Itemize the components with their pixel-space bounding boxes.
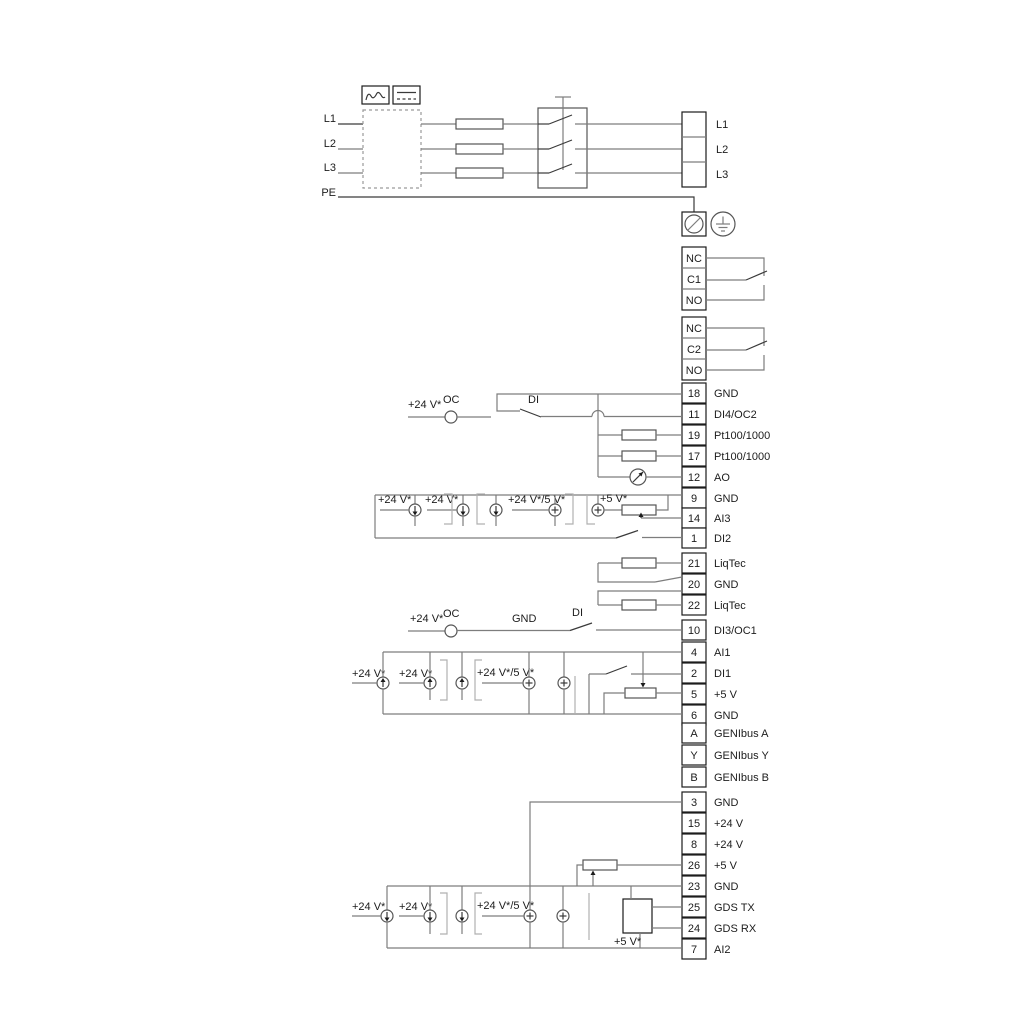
terminal-num: 10 bbox=[688, 625, 700, 637]
voltage-source-icon bbox=[482, 652, 535, 714]
relay1-nc: NC bbox=[686, 253, 702, 265]
gnd3-wire bbox=[530, 802, 682, 886]
terminal-num: 18 bbox=[688, 388, 700, 400]
gnd-wire bbox=[497, 394, 682, 411]
terminal-num: 4 bbox=[691, 647, 697, 659]
terminal-label: Pt100/1000 bbox=[714, 430, 770, 442]
switch-contact bbox=[520, 409, 541, 417]
terminal-label: GDS RX bbox=[714, 923, 757, 935]
terminal-label: LiqTec bbox=[714, 558, 746, 570]
terminal-label: +5 V bbox=[714, 689, 738, 701]
terminal-num: B bbox=[690, 772, 697, 784]
input-label-l3: L3 bbox=[324, 162, 336, 174]
terminal-label: GND bbox=[714, 493, 739, 505]
diagram-canvas: L1 L2 L3 PE bbox=[0, 0, 1024, 1024]
terminal-num: 1 bbox=[691, 533, 697, 545]
io-terminal-block: 18 11 19 17 12 9 14 1 GND DI4/OC2 Pt100/… bbox=[682, 383, 770, 959]
relay2-no: NO bbox=[686, 365, 703, 377]
relay2-block: NC C2 NO bbox=[682, 317, 767, 380]
option-bracket bbox=[477, 494, 485, 524]
relay1-no: NO bbox=[686, 295, 703, 307]
current-source-icon bbox=[352, 652, 389, 714]
terminal-label: DI1 bbox=[714, 668, 731, 680]
ai2-gds-supply-cluster: +24 V* +24 V* +24 V*/5 V* bbox=[352, 886, 682, 948]
dc-symbol-icon bbox=[393, 86, 420, 104]
terminal-num: 22 bbox=[688, 600, 700, 612]
terminal-num: 9 bbox=[691, 493, 697, 505]
terminal-num: 15 bbox=[688, 818, 700, 830]
terminal-label-l2: L2 bbox=[716, 144, 728, 156]
terminal-label: Pt100/1000 bbox=[714, 451, 770, 463]
terminal-num: A bbox=[690, 728, 698, 740]
di3-oc1-circuit: +24 V* OC GND DI bbox=[408, 607, 682, 637]
v24-5-label: +24 V*/5 V* bbox=[477, 900, 535, 912]
terminal-num: 5 bbox=[691, 689, 697, 701]
voltage-source-icon bbox=[557, 886, 569, 948]
protective-earth-symbol bbox=[711, 212, 735, 236]
terminal-label: GENIbus Y bbox=[714, 750, 769, 762]
terminal-num: 24 bbox=[688, 923, 700, 935]
resistor-liqtec-1 bbox=[622, 558, 656, 568]
option-bracket bbox=[440, 893, 447, 934]
terminal-label: +5 V bbox=[714, 860, 738, 872]
terminal-label: AO bbox=[714, 472, 730, 484]
terminal-num: 14 bbox=[688, 513, 700, 525]
option-bracket bbox=[565, 494, 573, 524]
input-label-l2: L2 bbox=[324, 138, 336, 150]
terminal-label: GENIbus B bbox=[714, 772, 769, 784]
resistor-pt100-1 bbox=[622, 430, 656, 440]
gds-sensor-box bbox=[623, 899, 652, 933]
terminal-num: 21 bbox=[688, 558, 700, 570]
contactor bbox=[538, 97, 587, 188]
terminal-label: LiqTec bbox=[714, 600, 746, 612]
terminal-label: GDS TX bbox=[714, 902, 755, 914]
filter-box bbox=[363, 110, 421, 188]
resistor-pt100-2 bbox=[622, 451, 656, 461]
power-input-section: L1 L2 L3 PE bbox=[321, 86, 735, 236]
current-source-icon bbox=[490, 495, 502, 526]
di-label: DI bbox=[528, 394, 539, 406]
terminal-label: AI3 bbox=[714, 513, 731, 525]
liqtec-circuit bbox=[598, 558, 682, 610]
supply-and-feedback-circuit bbox=[387, 802, 682, 886]
terminal-num: 6 bbox=[691, 710, 697, 722]
terminal-num: 25 bbox=[688, 902, 700, 914]
input-label-l1: L1 bbox=[324, 113, 336, 125]
terminal-label-l3: L3 bbox=[716, 169, 728, 181]
relay1-block: NC C1 NO bbox=[682, 247, 767, 310]
fuse-l3 bbox=[456, 168, 503, 178]
terminal-label-l1: L1 bbox=[716, 119, 728, 131]
terminal-num: 20 bbox=[688, 579, 700, 591]
terminal-num: Y bbox=[690, 750, 698, 762]
ai1-di1-supply-cluster: +24 V* +24 V* +24 V*/5 V* bbox=[352, 652, 682, 714]
v24-label: +24 V* bbox=[378, 494, 412, 506]
terminal-label: +24 V bbox=[714, 839, 744, 851]
fuse-l1 bbox=[456, 119, 503, 129]
terminal-label: DI4/OC2 bbox=[714, 409, 757, 421]
terminal-num: 8 bbox=[691, 839, 697, 851]
gnd-label: GND bbox=[512, 613, 537, 625]
relay2-nc: NC bbox=[686, 323, 702, 335]
input-label-pe: PE bbox=[321, 187, 336, 199]
potentiometer bbox=[625, 688, 656, 698]
v5-label: +5 V* bbox=[600, 493, 628, 505]
pe-wire bbox=[338, 197, 694, 212]
relay1-no-wire bbox=[706, 285, 764, 300]
terminal-num: 17 bbox=[688, 451, 700, 463]
current-source-icon bbox=[456, 652, 468, 700]
terminal-label: AI2 bbox=[714, 944, 731, 956]
open-collector-icon bbox=[445, 411, 457, 423]
terminal-label: GND bbox=[714, 388, 739, 400]
power-terminal-block: L1 L2 L3 bbox=[682, 112, 728, 187]
oc-label: OC bbox=[443, 608, 460, 620]
terminal-label: GND bbox=[714, 797, 739, 809]
pe-screw-terminal bbox=[682, 212, 706, 236]
switch-contact bbox=[570, 623, 592, 631]
wire bbox=[604, 693, 625, 714]
relay2-nc-wire bbox=[706, 328, 764, 346]
switch-contact bbox=[606, 666, 627, 674]
current-source-icon bbox=[456, 886, 468, 934]
wire bbox=[577, 865, 583, 886]
terminal-label: +24 V bbox=[714, 818, 744, 830]
terminal-num: 3 bbox=[691, 797, 697, 809]
terminal-num: 11 bbox=[688, 409, 699, 421]
resistor-liqtec-2 bbox=[622, 600, 656, 610]
switch-contact bbox=[616, 531, 638, 539]
wire bbox=[656, 495, 668, 510]
relay1-c1: C1 bbox=[687, 274, 701, 286]
v24-label: +24 V* bbox=[410, 613, 444, 625]
relay2-c2: C2 bbox=[687, 344, 701, 356]
terminal-label: GND bbox=[714, 881, 739, 893]
potentiometer bbox=[583, 860, 617, 870]
fuse-l2 bbox=[456, 144, 503, 154]
wiper-arrow-up bbox=[591, 871, 596, 876]
terminal-num: 2 bbox=[691, 668, 697, 680]
terminal-num: 26 bbox=[688, 860, 700, 872]
relay1-nc-wire bbox=[706, 258, 764, 276]
voltage-source-icon bbox=[482, 886, 536, 948]
terminal-num: 19 bbox=[688, 430, 700, 442]
open-collector-icon bbox=[445, 625, 457, 637]
v5-label: +5 V* bbox=[614, 936, 642, 948]
option-bracket bbox=[440, 660, 447, 700]
ai3-di2-supply-cluster: +24 V* +24 V* +24 V*/5 V* +5 V* bbox=[375, 493, 682, 538]
terminal-label: GENIbus A bbox=[714, 728, 769, 740]
option-bracket bbox=[475, 660, 482, 700]
oc-label: OC bbox=[443, 394, 460, 406]
v24-label: +24 V* bbox=[425, 494, 459, 506]
wiper-arrow-down bbox=[641, 683, 646, 688]
angled-wire bbox=[655, 577, 682, 582]
pt100-ao-circuit bbox=[598, 430, 682, 485]
wiring-diagram: L1 L2 L3 PE bbox=[0, 0, 1024, 1024]
v24-label: +24 V* bbox=[408, 399, 442, 411]
terminal-label: GND bbox=[714, 579, 739, 591]
terminal-num: 7 bbox=[691, 944, 697, 956]
terminal-block-power bbox=[682, 112, 706, 187]
v24-label: +24 V* bbox=[352, 901, 386, 913]
terminal-label: GND bbox=[714, 710, 739, 722]
voltage-source-icon bbox=[558, 652, 570, 714]
terminal-num: 12 bbox=[688, 472, 700, 484]
terminal-label: AI1 bbox=[714, 647, 731, 659]
terminal-num: 23 bbox=[688, 881, 700, 893]
current-source-icon bbox=[352, 886, 393, 948]
relay2-no-wire bbox=[706, 355, 764, 370]
terminal-label: DI3/OC1 bbox=[714, 625, 757, 637]
di-label: DI bbox=[572, 607, 583, 619]
potentiometer bbox=[622, 505, 656, 515]
terminal-label: DI2 bbox=[714, 533, 731, 545]
